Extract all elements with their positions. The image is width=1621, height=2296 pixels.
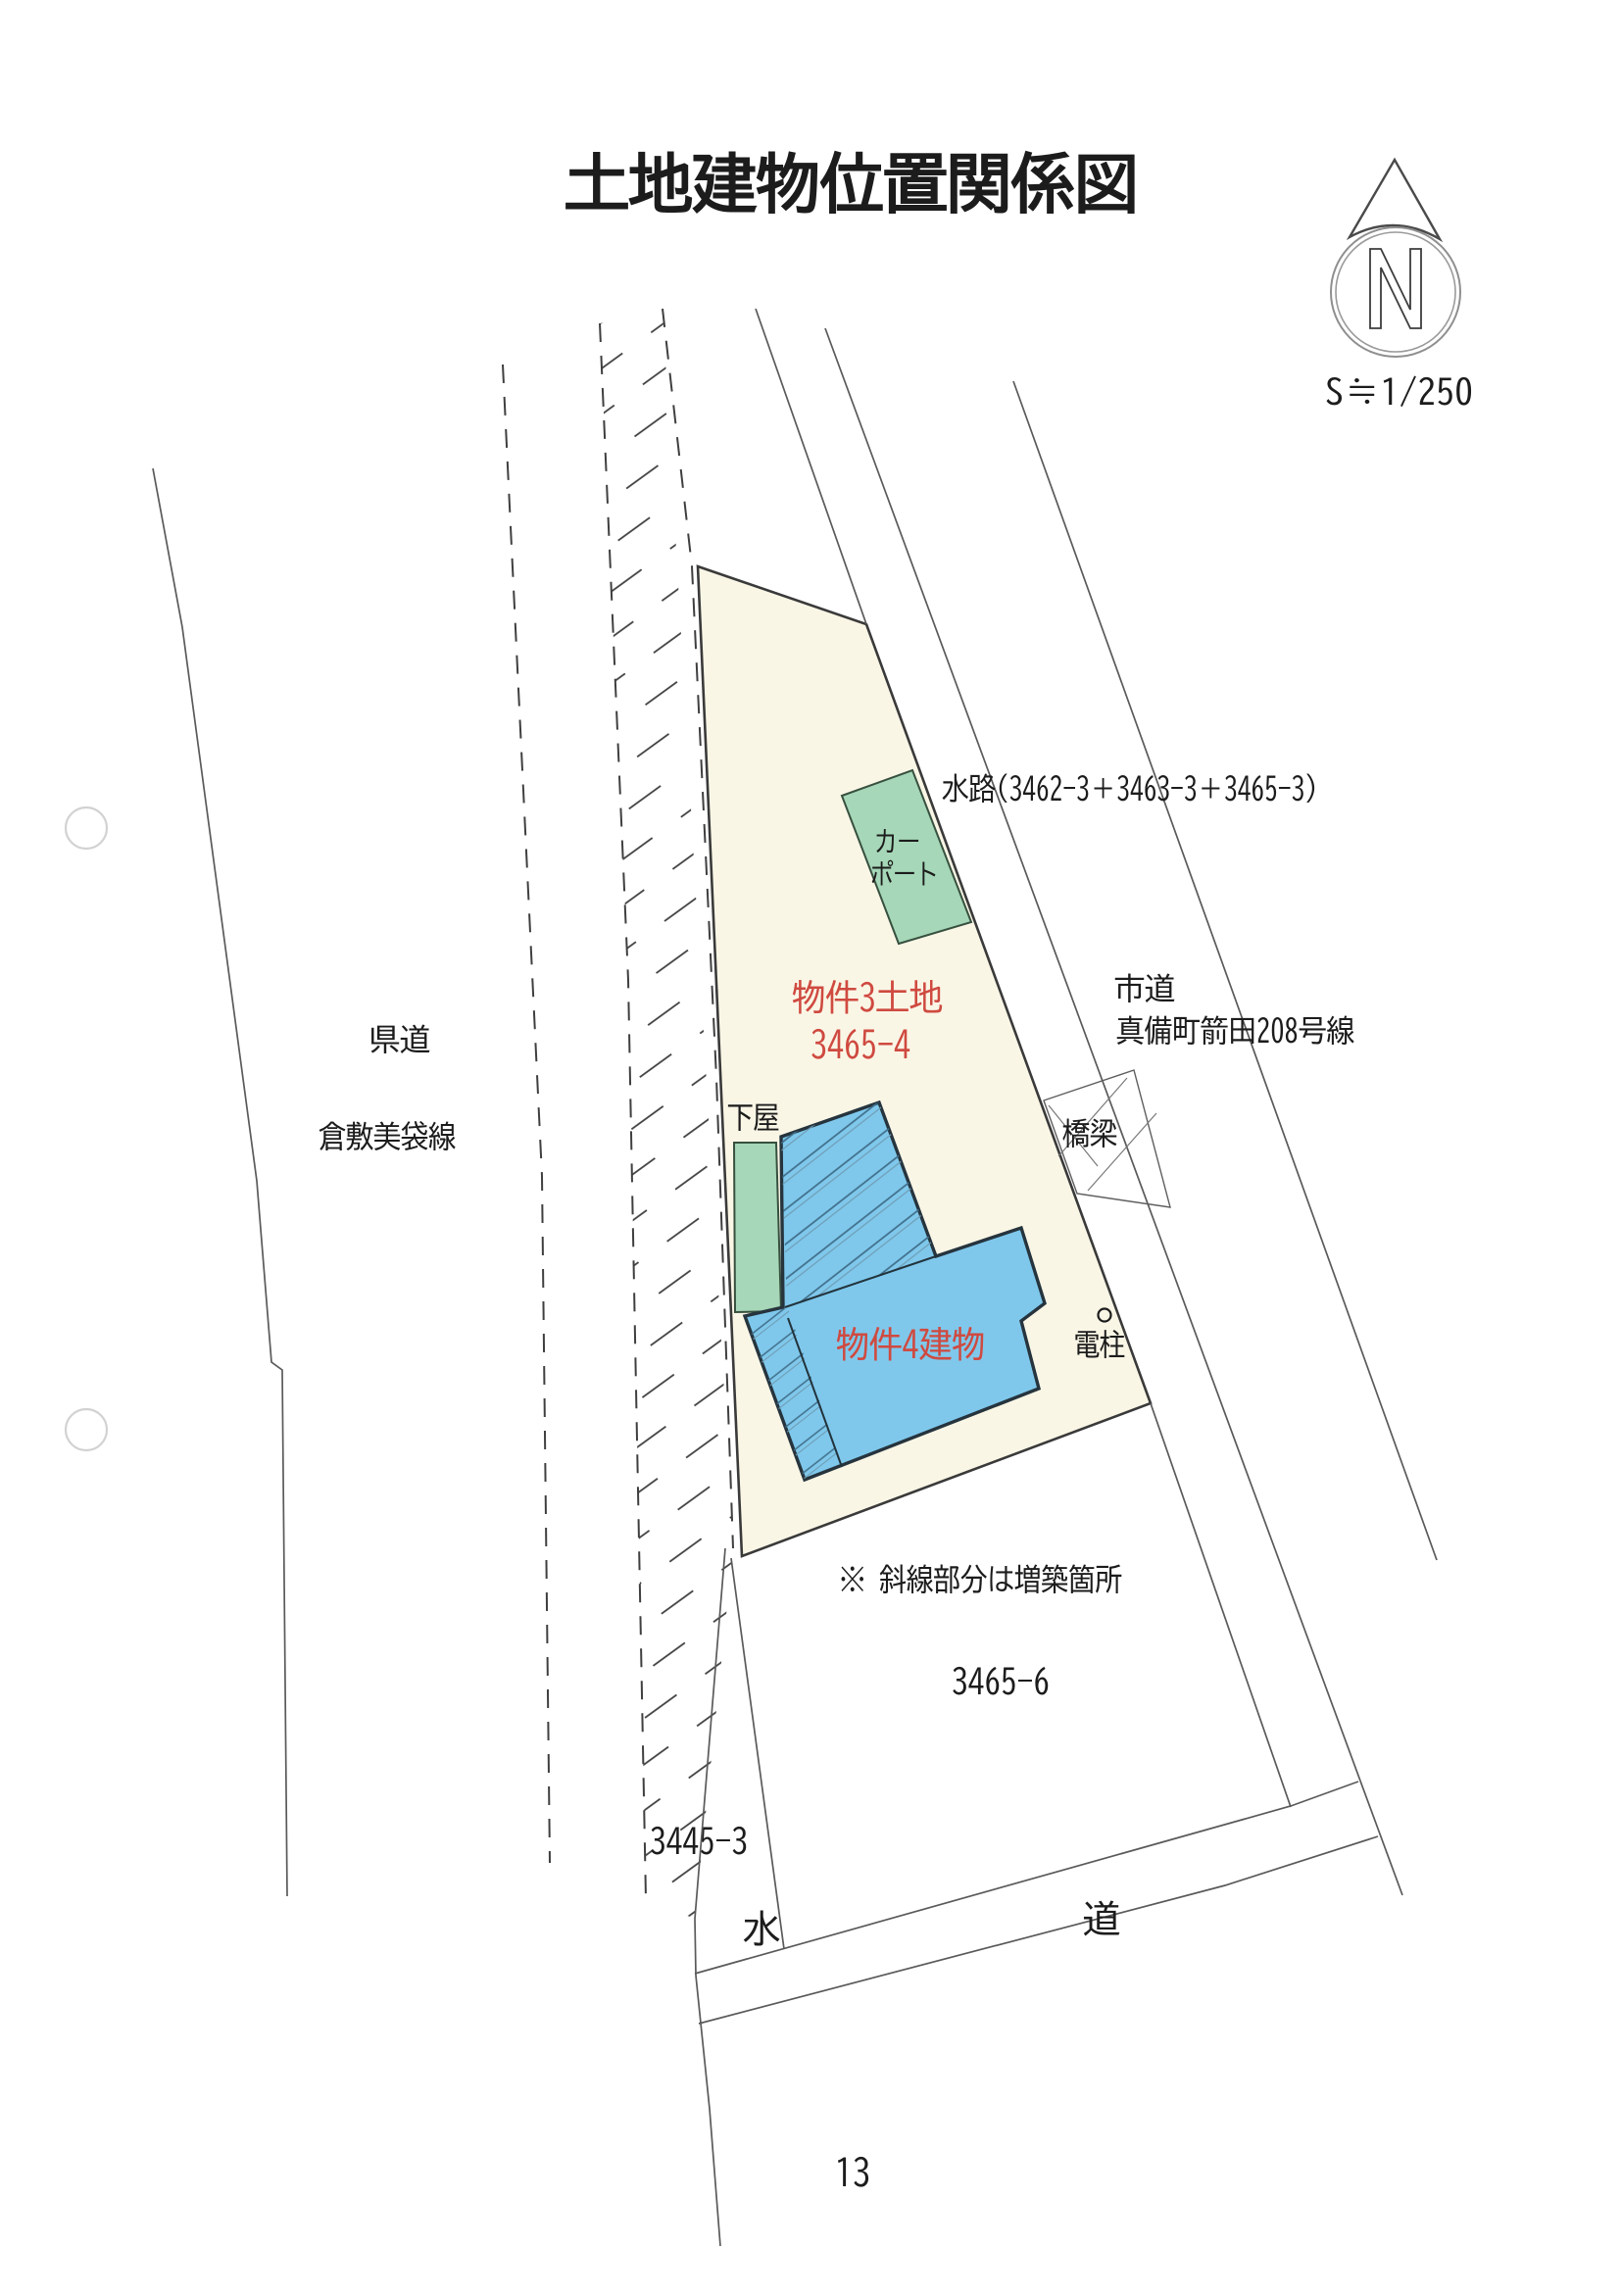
svg-text:3465-4: 3465-4 — [810, 1027, 910, 1062]
svg-text:道: 道 — [1083, 1900, 1120, 1937]
svg-text:倉敷美袋線: 倉敷美袋線 — [319, 1121, 456, 1151]
svg-text:物件3土地: 物件3土地 — [792, 980, 943, 1015]
svg-text:県道: 県道 — [369, 1024, 430, 1054]
svg-text:電柱: 電柱 — [1074, 1330, 1125, 1359]
svg-text:S≒1/250: S≒1/250 — [1325, 375, 1473, 409]
svg-text:市道: 市道 — [1114, 973, 1175, 1003]
svg-text:カー: カー — [874, 828, 920, 855]
svg-text:水路(3462-3＋3463-3＋3465-3): 水路(3462-3＋3463-3＋3465-3) — [942, 773, 1318, 804]
svg-text:水: 水 — [743, 1910, 780, 1947]
svg-text:3445-3: 3445-3 — [650, 1825, 748, 1858]
svg-text:下屋: 下屋 — [727, 1102, 779, 1132]
svg-text:真備町箭田208号線: 真備町箭田208号線 — [1116, 1015, 1354, 1046]
svg-text:物件4建物: 物件4建物 — [836, 1327, 985, 1362]
svg-text:橋梁: 橋梁 — [1062, 1118, 1117, 1148]
svg-text:3465-6: 3465-6 — [952, 1665, 1050, 1698]
svg-text:土地建物位置関係図: 土地建物位置関係図 — [565, 150, 1139, 215]
svg-text:※ 斜線部分は増築箇所: ※ 斜線部分は増築箇所 — [839, 1564, 1122, 1594]
svg-text:ポート: ポート — [870, 859, 939, 888]
svg-text:13: 13 — [835, 2155, 870, 2190]
